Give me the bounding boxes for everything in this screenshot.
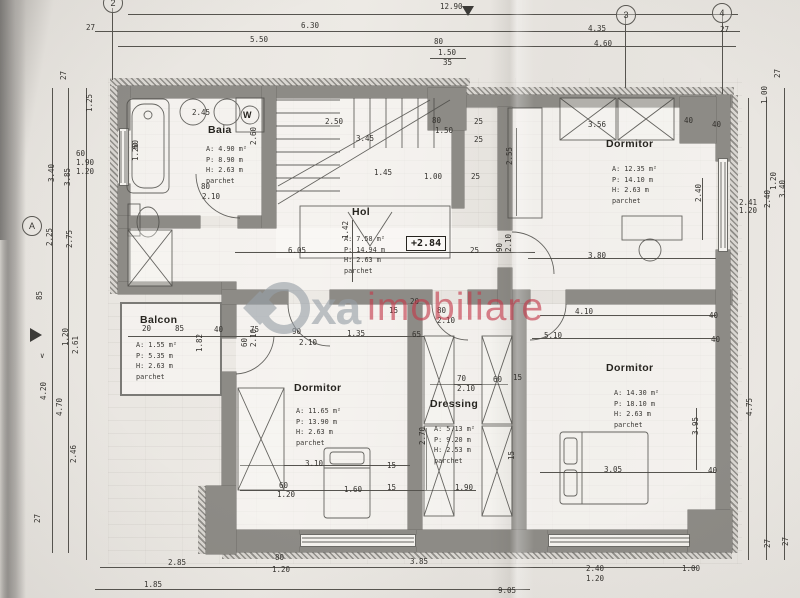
- dim-label: 27: [60, 71, 68, 80]
- dim-label: 1.42: [342, 221, 350, 239]
- dim-label: 4.60: [594, 40, 612, 48]
- wall: [716, 250, 730, 532]
- paper-fold-shadow: [490, 0, 534, 598]
- dimension-line: [748, 98, 749, 560]
- wall: [118, 282, 232, 294]
- wall-insulation-hatch: [110, 78, 470, 86]
- dimension-line: [128, 14, 738, 15]
- wall: [688, 510, 732, 552]
- dim-label: 27: [764, 539, 772, 548]
- wall: [118, 86, 130, 130]
- room-info-hol: A: 7.58 m²P: 14.94 mH: 2.63 mparchet: [344, 234, 385, 276]
- dim-label: 1.90: [76, 159, 94, 167]
- dim-label: 40: [712, 121, 721, 129]
- room-name-baia: Baia: [208, 124, 232, 136]
- dim-label: 90: [292, 328, 301, 336]
- dim-label: 40: [684, 117, 693, 125]
- dim-label: 1.35: [347, 330, 365, 338]
- grid-bubble-3: 3: [616, 5, 636, 25]
- level-marker: +2.84: [406, 236, 446, 251]
- dim-label: 60: [493, 376, 502, 384]
- dim-label: 85: [175, 325, 184, 333]
- dim-label: 1.00: [682, 565, 700, 573]
- dim-label: 1.45: [374, 169, 392, 177]
- dim-label: 2.46: [70, 445, 78, 463]
- dimension-line: [95, 31, 740, 32]
- dim-label: 90: [496, 243, 504, 252]
- grid-bubble-2: 2: [103, 0, 123, 13]
- dim-label: 1.00: [424, 173, 442, 181]
- room-name-dorm3: Dormitor: [606, 362, 654, 374]
- room-name-dorm1: Dormitor: [606, 138, 654, 150]
- dim-label: 27: [782, 537, 790, 546]
- dim-label: 2.61: [72, 336, 80, 354]
- dimension-line: [95, 589, 530, 590]
- dimension-line: [128, 336, 424, 337]
- dim-label: 3.80: [588, 252, 606, 260]
- dim-label: 3.56: [588, 121, 606, 129]
- dim-label: 1.20: [770, 172, 778, 190]
- dimension-line: [52, 88, 53, 553]
- dim-label: 3.40: [48, 164, 56, 182]
- dimension-line: [540, 315, 716, 316]
- dim-label: 40: [214, 326, 223, 334]
- dim-label: 20: [142, 325, 151, 333]
- wall: [262, 86, 276, 228]
- dim-label: 4.70: [56, 398, 64, 416]
- dim-label: 80: [434, 38, 443, 46]
- dim-label: 35: [443, 59, 452, 67]
- dim-label: 3.95: [692, 417, 700, 435]
- dim-label: 3.10: [305, 460, 323, 468]
- dim-label: 65: [412, 331, 421, 339]
- room-info-dorm1: A: 12.35 m²P: 14.10 mH: 2.63 mparchet: [612, 164, 657, 206]
- dim-label: 80: [432, 117, 441, 125]
- washer-label: W: [243, 110, 252, 120]
- dim-label: 2.40: [764, 190, 772, 208]
- grid-bubble-a: A: [22, 216, 42, 236]
- floor-plan-photo: Baia A: 4.90 m²P: 8.90 mH: 2.63 mparchet…: [0, 0, 800, 598]
- dim-label: 1.50: [438, 49, 456, 57]
- dimension-line: [784, 88, 785, 560]
- dim-label: 25: [470, 247, 479, 255]
- dimension-line: [766, 98, 767, 560]
- wall: [206, 486, 236, 554]
- wall: [548, 547, 690, 552]
- dim-label: 27: [774, 69, 782, 78]
- dim-label: 2.10: [437, 317, 455, 325]
- dim-label: 1.60: [344, 486, 362, 494]
- dim-label: 27: [720, 26, 729, 34]
- dim-label: 15: [387, 484, 396, 492]
- dim-label: 15: [387, 462, 396, 470]
- dim-label: 1.20: [272, 566, 290, 574]
- dim-label: 2.60: [250, 127, 258, 145]
- dimension-line: [540, 472, 716, 473]
- room-info-dorm3: A: 14.30 m²P: 18.10 mH: 2.63 mparchet: [614, 388, 659, 430]
- photo-edge-left-light: [0, 240, 8, 598]
- wall: [222, 290, 288, 304]
- dim-label: 2.45: [192, 109, 210, 117]
- wall-insulation-hatch: [110, 86, 118, 294]
- dim-label: 1.90: [455, 484, 473, 492]
- room-info-baia: A: 4.90 m²P: 8.90 mH: 2.63 mparchet: [206, 144, 247, 186]
- dim-label: 9.05: [498, 587, 516, 595]
- window: [119, 128, 129, 186]
- dim-label: 60: [279, 482, 288, 490]
- wall: [118, 184, 130, 294]
- dim-label: 2.10: [457, 385, 475, 393]
- dim-label: 1.25: [86, 94, 94, 112]
- dim-label: 1.20: [739, 207, 757, 215]
- wall-insulation-hatch: [730, 95, 738, 553]
- dim-label: 40: [709, 312, 718, 320]
- grid-bubble-4: 4: [712, 3, 732, 23]
- dimension-line: [240, 465, 410, 466]
- window: [718, 158, 728, 252]
- dimension-line: [118, 46, 736, 47]
- dimension-line: [625, 14, 626, 88]
- section-marker-icon: [30, 328, 42, 342]
- dim-label: 5.10: [544, 332, 562, 340]
- dim-label: 15: [513, 374, 522, 382]
- dimension-line: [112, 8, 113, 80]
- dim-label: 1.20: [277, 491, 295, 499]
- dim-label: 1.82: [196, 334, 204, 352]
- dim-label: 3.45: [356, 135, 374, 143]
- wall: [118, 86, 270, 98]
- dim-label: 25: [474, 118, 483, 126]
- wall: [566, 290, 732, 304]
- dim-label: 85: [36, 291, 44, 300]
- window: [300, 534, 416, 547]
- dim-label: 25: [471, 173, 480, 181]
- wall-insulation-hatch: [198, 486, 206, 554]
- dim-label: 80: [275, 554, 284, 562]
- datum-triangle-icon: [462, 6, 474, 16]
- dim-label: 27: [86, 24, 95, 32]
- dim-label: 6.30: [301, 22, 319, 30]
- dim-label: 4.75: [746, 398, 754, 416]
- dim-label: 1.50: [435, 127, 453, 135]
- dim-label: 2.10: [299, 339, 317, 347]
- dim-label: 4.20: [40, 382, 48, 400]
- dim-label: 15: [389, 307, 398, 315]
- dim-label: 5.50: [250, 36, 268, 44]
- dim-label: 70: [457, 375, 466, 383]
- dim-label: 3.85: [410, 558, 428, 566]
- dim-label: 2.55: [506, 147, 514, 165]
- dim-label: 3.05: [604, 466, 622, 474]
- dim-label: 15: [508, 451, 516, 460]
- room-info-dressing: A: 5.13 m²P: 9.20 mH: 2.53 mparchet: [434, 424, 475, 466]
- dim-label: 2.70: [419, 427, 427, 445]
- dim-label: 1.00: [761, 86, 769, 104]
- dim-label: 2.10: [505, 234, 513, 252]
- dim-label: 1.20: [76, 168, 94, 176]
- room-info-balcon: A: 1.55 m²P: 5.35 mH: 2.63 mparchet: [136, 340, 177, 382]
- dim-label: 1.20: [132, 143, 140, 161]
- dim-label: 2.40: [586, 565, 604, 573]
- wall: [118, 216, 200, 228]
- dim-label: 1.85: [144, 581, 162, 589]
- dimension-line: [100, 567, 696, 568]
- dimension-line: [68, 88, 69, 553]
- room-name-dressing: Dressing: [430, 398, 478, 410]
- dimension-line: [528, 258, 716, 259]
- dim-label: 25: [474, 136, 483, 144]
- dim-label: 20: [410, 298, 419, 306]
- dim-label: 2.10: [202, 193, 220, 201]
- room-name-hol: Hol: [352, 206, 370, 218]
- window: [548, 534, 690, 547]
- dim-label: 3.85: [64, 168, 72, 186]
- dim-label: 12.90: [440, 3, 463, 11]
- dim-label: 2.50: [325, 118, 343, 126]
- dim-label: 2.10: [250, 329, 258, 347]
- dim-label: 2.85: [168, 559, 186, 567]
- dim-label: 1.20: [62, 328, 70, 346]
- dim-label: 60: [241, 338, 249, 347]
- wall: [300, 547, 416, 552]
- room-info-dorm2: A: 11.65 m²P: 13.90 mH: 2.63 mparchet: [296, 406, 341, 448]
- dim-label: 4.10: [575, 308, 593, 316]
- wall-insulation-hatch: [222, 551, 732, 559]
- dim-label: 2.25: [46, 228, 54, 246]
- dim-label: 80: [437, 307, 446, 315]
- room-name-dorm2: Dormitor: [294, 382, 342, 394]
- dim-label: 80: [201, 183, 210, 191]
- dim-label: 40: [708, 467, 717, 475]
- dim-label: 1.20: [586, 575, 604, 583]
- dim-label: 27: [34, 514, 42, 523]
- dim-label: 40: [711, 336, 720, 344]
- dim-label: 4.35: [588, 25, 606, 33]
- section-v-icon: ∨: [40, 352, 45, 360]
- dim-label: 6.05: [288, 247, 306, 255]
- dim-label: 2.75: [66, 230, 74, 248]
- dim-label: 3.40: [779, 180, 787, 198]
- dim-label: 2.40: [695, 184, 703, 202]
- dim-label: 60: [76, 150, 85, 158]
